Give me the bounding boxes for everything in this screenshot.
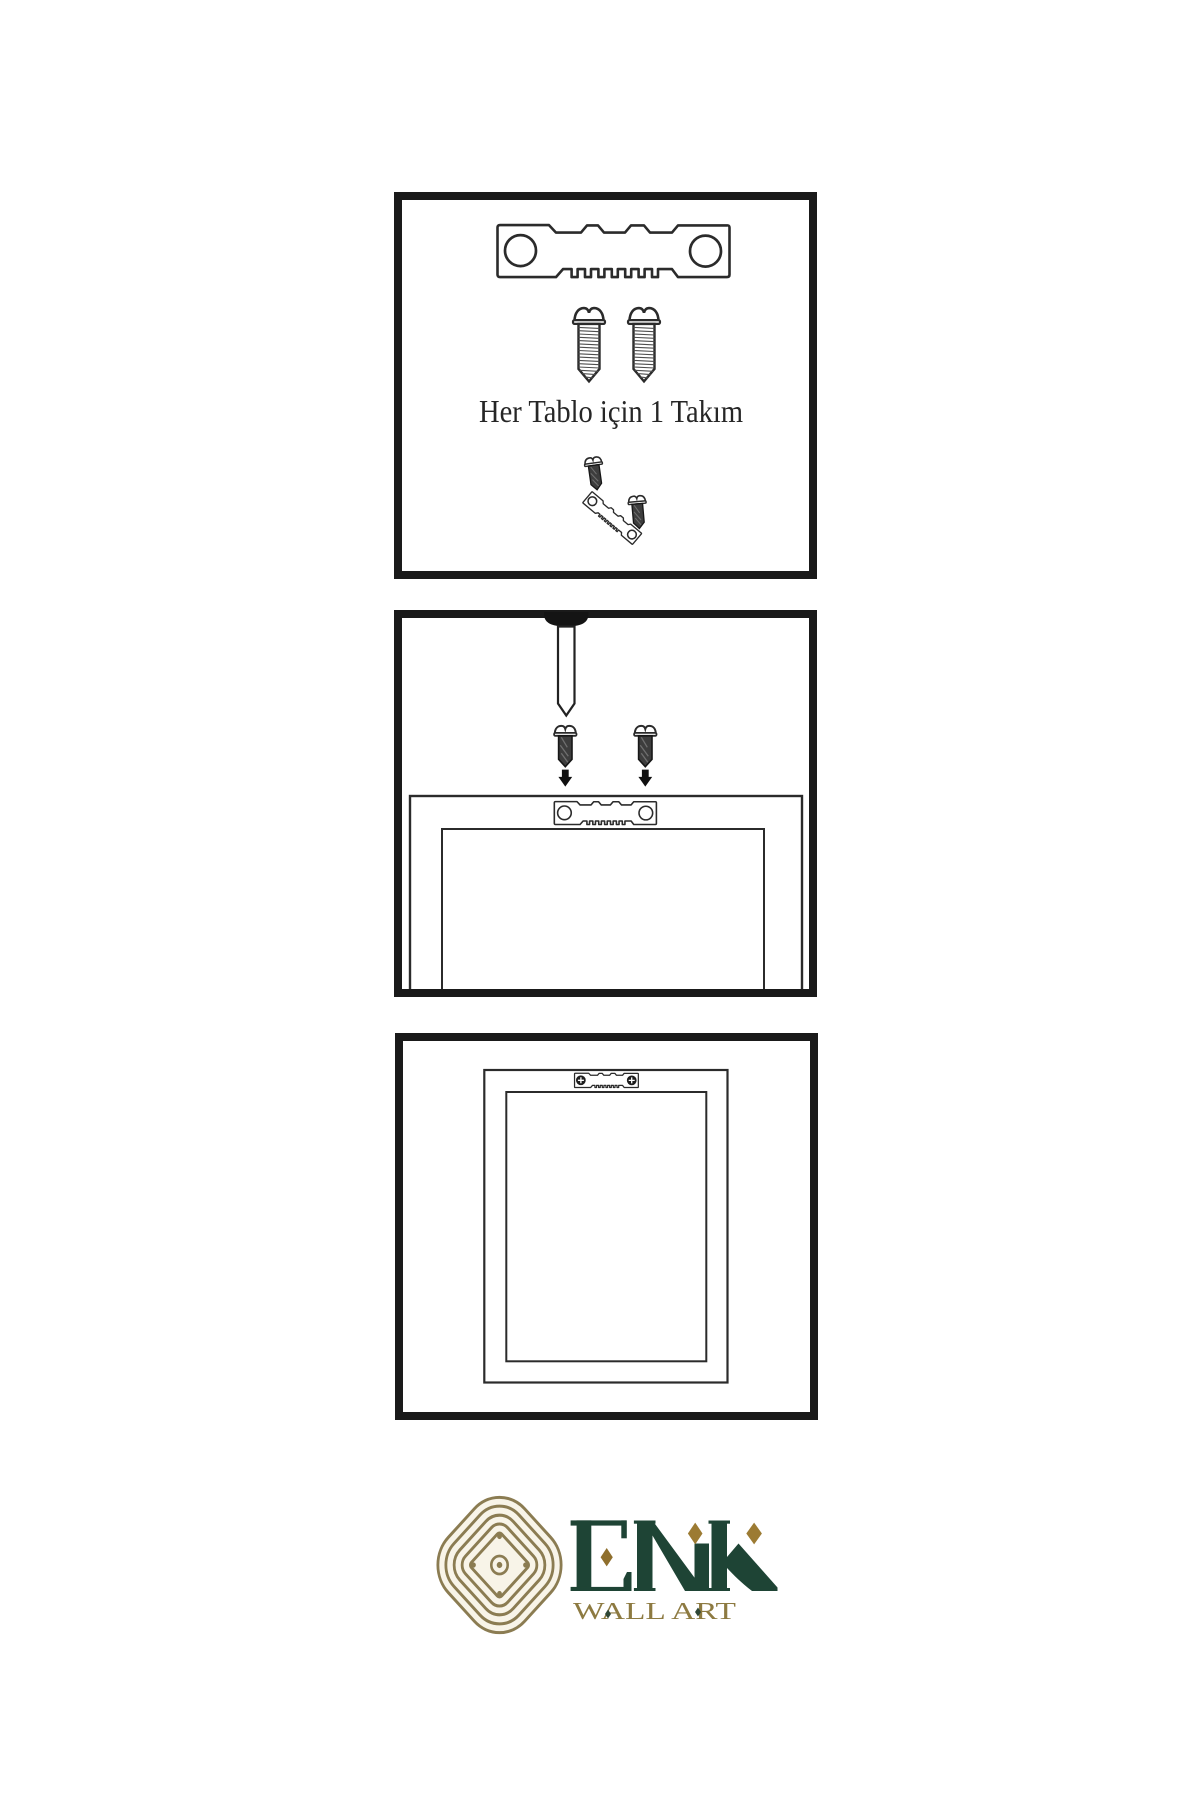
svg-text:WALL ART: WALL ART (573, 1599, 736, 1625)
svg-text:Her Tablo için 1 Takım: Her Tablo için 1 Takım (479, 393, 743, 429)
